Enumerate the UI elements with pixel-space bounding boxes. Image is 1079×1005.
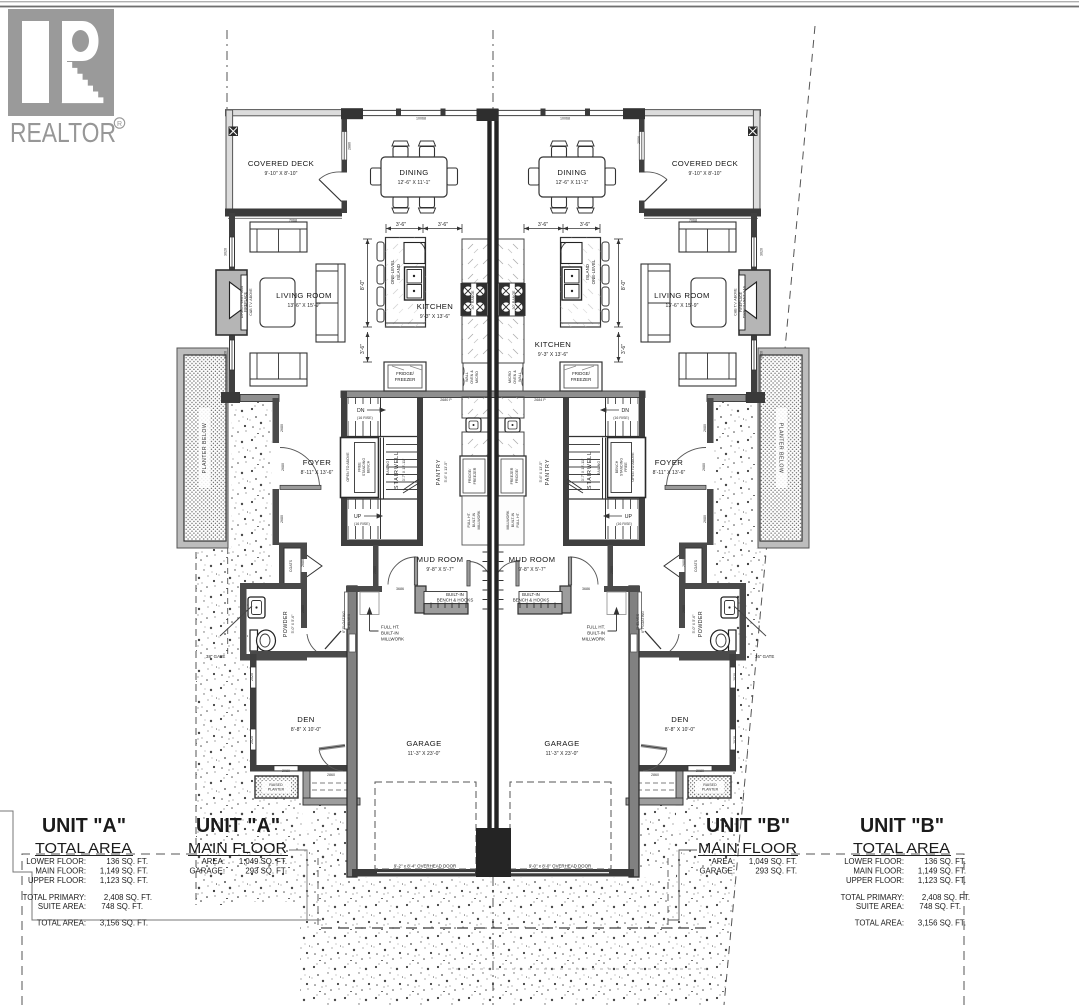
svg-text:MUD ROOM: MUD ROOM: [417, 555, 464, 564]
svg-text:TOTAL AREA:: TOTAL AREA:: [855, 919, 904, 928]
svg-text:MILLWORK: MILLWORK: [506, 510, 510, 530]
svg-text:9'-8" X 5'-7": 9'-8" X 5'-7": [426, 567, 453, 573]
svg-text:GARAGE:: GARAGE:: [699, 867, 735, 876]
svg-text:2680: 2680: [280, 424, 284, 432]
svg-text:REALTOR: REALTOR: [10, 117, 116, 148]
svg-text:WALL: WALL: [518, 372, 522, 382]
svg-text:C&B T.V. ABOVE: C&B T.V. ABOVE: [249, 288, 253, 316]
svg-text:ISLAND: ISLAND: [585, 264, 590, 280]
svg-text:3'-7" X 12'-11": 3'-7" X 12'-11": [402, 458, 406, 481]
svg-text:OPEN TO ABOVE: OPEN TO ABOVE: [346, 452, 350, 482]
svg-text:UPPER FLOOR:: UPPER FLOOR:: [846, 876, 904, 885]
svg-text:UNIT "B": UNIT "B": [706, 814, 790, 837]
svg-text:POWDER: POWDER: [698, 611, 704, 637]
svg-text:BUILT-IN: BUILT-IN: [522, 592, 540, 597]
svg-text:MICRO: MICRO: [508, 371, 512, 383]
svg-text:FRIDGE/: FRIDGE/: [515, 469, 519, 484]
svg-text:MAIN FLOOR: MAIN FLOOR: [698, 840, 797, 857]
svg-text:136 SQ. FT.: 136 SQ. FT.: [106, 857, 148, 866]
svg-text:38" GATE: 38" GATE: [206, 654, 225, 659]
svg-text:748 SQ. FT.: 748 SQ. FT.: [919, 902, 961, 911]
svg-text:8'-0": 8'-0": [360, 280, 366, 290]
svg-text:2886: 2886: [348, 142, 352, 150]
svg-text:DN: DN: [357, 408, 365, 414]
svg-text:2020: 2020: [733, 673, 737, 681]
svg-text:FRIDGE/: FRIDGE/: [396, 371, 415, 376]
svg-text:293 SQ. FT.: 293 SQ. FT.: [755, 867, 797, 876]
svg-text:13'-6" X 15'-9": 13'-6" X 15'-9": [665, 303, 698, 309]
svg-text:BUILT-IN: BUILT-IN: [446, 592, 464, 597]
svg-text:1,049 SQ. FT.: 1,049 SQ. FT.: [239, 857, 287, 866]
svg-text:RAILING: RAILING: [597, 461, 601, 476]
svg-text:FOYER: FOYER: [303, 458, 332, 467]
svg-text:12'-6" X 11'-1": 12'-6" X 11'-1": [398, 180, 431, 186]
svg-text:10068: 10068: [560, 117, 570, 121]
svg-text:DEN: DEN: [671, 715, 688, 724]
svg-text:OVEN &: OVEN &: [470, 370, 474, 384]
svg-text:GARAGE: GARAGE: [406, 739, 441, 748]
svg-text:WALL: WALL: [465, 372, 469, 382]
svg-text:POWDER: POWDER: [283, 611, 289, 637]
svg-text:(16 RISE): (16 RISE): [616, 522, 632, 526]
svg-text:RAISED: RAISED: [703, 783, 717, 787]
svg-text:GARAGE: GARAGE: [544, 739, 579, 748]
svg-text:COVERED DECK: COVERED DECK: [672, 159, 739, 168]
svg-text:2080: 2080: [696, 769, 704, 773]
svg-text:9'-10" X 8'-10": 9'-10" X 8'-10": [688, 171, 721, 177]
svg-text:DINING: DINING: [557, 168, 586, 177]
svg-text:LOWER FLOOR:: LOWER FLOOR:: [844, 857, 904, 866]
svg-text:2680: 2680: [702, 463, 706, 471]
svg-text:TOTAL PRIMARY:: TOTAL PRIMARY:: [23, 893, 86, 902]
svg-text:7068: 7068: [689, 219, 697, 223]
svg-text:5'-6" X 13'-5": 5'-6" X 13'-5": [444, 461, 448, 482]
svg-text:PLANTER BELOW: PLANTER BELOW: [778, 423, 784, 474]
svg-text:BENCH: BENCH: [367, 460, 371, 473]
svg-text:C&B T.V. ABOVE: C&B T.V. ABOVE: [734, 288, 738, 316]
svg-text:2680: 2680: [280, 515, 284, 523]
svg-text:36" GATE: 36" GATE: [755, 654, 774, 659]
svg-text:BUILT-IN: BUILT-IN: [587, 631, 605, 636]
svg-text:MUD ROOM: MUD ROOM: [509, 555, 556, 564]
svg-text:FREE: FREE: [624, 462, 628, 472]
svg-text:UNIT "A": UNIT "A": [42, 814, 126, 837]
svg-text:PANTRY: PANTRY: [545, 459, 551, 486]
svg-text:COATS: COATS: [289, 559, 293, 572]
svg-text:2880: 2880: [373, 566, 377, 574]
svg-text:BUILT-IN: BUILT-IN: [511, 512, 515, 527]
svg-text:5'-0" X 5'-6": 5'-0" X 5'-6": [692, 614, 696, 633]
svg-text:6" FLOATING: 6" FLOATING: [342, 611, 346, 633]
svg-text:9'-8" X 5'-7": 9'-8" X 5'-7": [518, 567, 545, 573]
svg-text:3020: 3020: [760, 248, 764, 256]
svg-text:3020: 3020: [224, 248, 228, 256]
svg-text:LIVING ROOM: LIVING ROOM: [654, 291, 710, 300]
svg-text:BENCH & HOOKS: BENCH & HOOKS: [513, 598, 550, 603]
svg-text:30" RANGE: 30" RANGE: [471, 290, 475, 310]
svg-text:OVEN &: OVEN &: [513, 370, 517, 384]
svg-text:9'-0" x 8'-0" OVERHEAD DOOR: 9'-0" x 8'-0" OVERHEAD DOOR: [529, 864, 591, 869]
svg-text:2,408 SQ. FT.: 2,408 SQ. FT.: [922, 893, 970, 902]
svg-text:FREEZER: FREEZER: [395, 377, 416, 382]
svg-text:3'-6": 3'-6": [580, 222, 590, 228]
svg-text:KITCHEN: KITCHEN: [417, 302, 454, 311]
svg-text:748 SQ. FT.: 748 SQ. FT.: [101, 902, 143, 911]
svg-text:MILLWORK: MILLWORK: [582, 637, 605, 642]
svg-text:(16 RISE): (16 RISE): [354, 522, 370, 526]
svg-text:3'-6": 3'-6": [621, 344, 627, 354]
svg-text:1,123 SQ. FT.: 1,123 SQ. FT.: [918, 876, 966, 885]
svg-text:UP: UP: [354, 514, 362, 520]
svg-text:MAIN FLOOR:: MAIN FLOOR:: [35, 867, 86, 876]
svg-text:UNIT "B": UNIT "B": [860, 814, 944, 837]
svg-text:STAIRWELL: STAIRWELL: [394, 451, 400, 489]
svg-text:3686: 3686: [396, 587, 404, 591]
svg-text:FIREPLACE: FIREPLACE: [739, 291, 743, 312]
svg-text:(16 RISE): (16 RISE): [357, 416, 373, 420]
svg-text:MILLWORK: MILLWORK: [381, 637, 404, 642]
svg-text:3,156 SQ. FT.: 3,156 SQ. FT.: [918, 919, 966, 928]
svg-text:(16 RISE): (16 RISE): [613, 416, 629, 420]
svg-text:LIVING ROOM: LIVING ROOM: [276, 291, 332, 300]
svg-text:2680: 2680: [281, 463, 285, 471]
svg-text:3020: 3020: [760, 351, 764, 359]
svg-text:UPPER FLOOR:: UPPER FLOOR:: [28, 876, 86, 885]
svg-text:RAISED: RAISED: [269, 783, 283, 787]
svg-text:2680: 2680: [301, 559, 305, 567]
svg-text:COATS: COATS: [694, 559, 698, 572]
svg-text:136 SQ. FT.: 136 SQ. FT.: [924, 857, 966, 866]
svg-text:7068: 7068: [289, 219, 297, 223]
svg-text:2080: 2080: [282, 769, 290, 773]
svg-text:ONE-LEVEL: ONE-LEVEL: [591, 259, 596, 284]
svg-text:SUITE AREA:: SUITE AREA:: [856, 902, 904, 911]
svg-text:UNIT "A": UNIT "A": [196, 814, 280, 837]
svg-text:9'-3" X 13'-6": 9'-3" X 13'-6": [420, 314, 450, 320]
svg-text:11'-3" X 23'-0": 11'-3" X 23'-0": [408, 751, 441, 757]
svg-text:30" RANGE: 30" RANGE: [512, 290, 516, 310]
svg-text:UP: UP: [625, 514, 633, 520]
svg-text:5'-6" X 13'-5": 5'-6" X 13'-5": [539, 461, 543, 482]
svg-text:12'-6" X 11'-1": 12'-6" X 11'-1": [556, 180, 589, 186]
svg-text:SHELVES: SHELVES: [347, 613, 351, 630]
svg-text:PLANTER BELOW: PLANTER BELOW: [202, 423, 208, 474]
svg-text:9'-2" x 8'-4" OVERHEAD DOOR: 9'-2" x 8'-4" OVERHEAD DOOR: [394, 864, 456, 869]
svg-text:LOWER FLOOR:: LOWER FLOOR:: [26, 857, 86, 866]
svg-text:MAIN FLOOR: MAIN FLOOR: [188, 840, 287, 857]
svg-text:8'-0": 8'-0": [621, 280, 627, 290]
svg-text:1,149 SQ. FT.: 1,149 SQ. FT.: [918, 867, 966, 876]
svg-text:2680: 2680: [301, 605, 305, 613]
svg-text:2860: 2860: [651, 773, 659, 777]
svg-text:3'-6": 3'-6": [538, 222, 548, 228]
svg-text:2880: 2880: [610, 566, 614, 574]
svg-text:2020: 2020: [250, 736, 254, 744]
svg-text:BENCH & HOOKS: BENCH & HOOKS: [437, 598, 474, 603]
svg-text:3'-6": 3'-6": [438, 222, 448, 228]
svg-text:FREE: FREE: [358, 462, 362, 472]
svg-text:TOTAL PRIMARY:: TOTAL PRIMARY:: [841, 893, 904, 902]
svg-text:PANTRY: PANTRY: [436, 459, 442, 486]
svg-text:STANDING: STANDING: [620, 458, 624, 477]
svg-text:DEN: DEN: [297, 715, 314, 724]
svg-text:8'-11" X 13'-6": 8'-11" X 13'-6": [301, 470, 334, 476]
svg-text:9'-3" X 13'-6": 9'-3" X 13'-6": [538, 352, 568, 358]
svg-text:FRIDGE/: FRIDGE/: [572, 371, 591, 376]
svg-text:2680: 2680: [703, 424, 707, 432]
svg-text:293 SQ. FT.: 293 SQ. FT.: [245, 867, 287, 876]
svg-text:2020: 2020: [733, 736, 737, 744]
svg-text:8'-8" X 10'-0": 8'-8" X 10'-0": [665, 727, 695, 733]
svg-text:STAIRWELL: STAIRWELL: [587, 451, 593, 489]
svg-text:TOTAL AREA:: TOTAL AREA:: [37, 919, 86, 928]
svg-text:2886: 2886: [637, 136, 641, 144]
svg-text:RAILING: RAILING: [386, 461, 390, 476]
svg-text:BENCH: BENCH: [615, 460, 619, 473]
svg-text:FRIDGE/: FRIDGE/: [468, 469, 472, 484]
svg-text:3'-6": 3'-6": [360, 344, 366, 354]
svg-text:GARAGE:: GARAGE:: [189, 867, 225, 876]
svg-text:1,149 SQ. FT.: 1,149 SQ. FT.: [100, 867, 148, 876]
svg-text:AREA:: AREA:: [712, 857, 735, 866]
svg-text:PLANTER: PLANTER: [702, 788, 719, 792]
svg-text:FREEZER: FREEZER: [510, 467, 514, 484]
svg-text:ISLAND: ISLAND: [396, 264, 401, 280]
svg-text:STANDING: STANDING: [362, 458, 366, 477]
svg-text:FIREPLACE: FIREPLACE: [244, 291, 248, 312]
svg-text:MAIN FLOOR:: MAIN FLOOR:: [853, 867, 904, 876]
svg-text:AREA:: AREA:: [202, 857, 225, 866]
svg-text:3'-7" X 12'-11": 3'-7" X 12'-11": [581, 458, 585, 481]
svg-text:MILLWORK: MILLWORK: [477, 510, 481, 530]
svg-text:2680: 2680: [682, 605, 686, 613]
svg-text:2680 P: 2680 P: [440, 398, 452, 402]
svg-text:BUILT-IN: BUILT-IN: [472, 512, 476, 527]
svg-text:2680: 2680: [682, 559, 686, 567]
svg-text:FREEZER: FREEZER: [473, 467, 477, 484]
svg-text:3'-6": 3'-6": [396, 222, 406, 228]
svg-text:FREEZER: FREEZER: [571, 377, 592, 382]
svg-text:5'-0" X 5'-6": 5'-0" X 5'-6": [291, 614, 295, 633]
svg-text:PLANTER: PLANTER: [268, 788, 285, 792]
svg-text:COVERED DECK: COVERED DECK: [248, 159, 315, 168]
svg-text:OPEN TO ABOVE: OPEN TO ABOVE: [631, 452, 635, 482]
svg-text:DINING: DINING: [399, 168, 428, 177]
svg-text:FULL HT.: FULL HT.: [381, 625, 399, 630]
svg-text:3020: 3020: [224, 351, 228, 359]
svg-text:11'-3" X 23'-0": 11'-3" X 23'-0": [546, 751, 579, 757]
svg-text:6" FLOATING: 6" FLOATING: [641, 611, 645, 633]
svg-text:10068: 10068: [416, 117, 426, 121]
svg-text:8'-8" X 10'-0": 8'-8" X 10'-0": [291, 727, 321, 733]
svg-text:ONE-LEVEL: ONE-LEVEL: [390, 259, 395, 284]
svg-text:2020: 2020: [250, 673, 254, 681]
svg-text:1,049 SQ. FT.: 1,049 SQ. FT.: [749, 857, 797, 866]
svg-text:MICRO: MICRO: [475, 371, 479, 383]
svg-text:DIRECT VENT GAS: DIRECT VENT GAS: [743, 285, 747, 318]
svg-text:SUITE AREA:: SUITE AREA:: [38, 902, 86, 911]
svg-text:2,408 SQ. FT.: 2,408 SQ. FT.: [104, 893, 152, 902]
svg-text:R: R: [117, 121, 122, 128]
svg-text:13'-6" X 15'-9": 13'-6" X 15'-9": [287, 303, 320, 309]
svg-text:DN: DN: [622, 408, 630, 414]
svg-text:3686: 3686: [582, 587, 590, 591]
svg-text:2860: 2860: [327, 773, 335, 777]
svg-text:SHELVES: SHELVES: [636, 613, 640, 630]
svg-text:BUILT-IN: BUILT-IN: [381, 631, 399, 636]
svg-text:3,156 SQ. FT.: 3,156 SQ. FT.: [100, 919, 148, 928]
svg-text:FULL HT.: FULL HT.: [587, 625, 605, 630]
svg-text:9'-10" X 8'-10": 9'-10" X 8'-10": [264, 171, 297, 177]
svg-text:FULL HT.: FULL HT.: [516, 512, 520, 527]
svg-text:FULL HT.: FULL HT.: [467, 512, 471, 527]
svg-text:KITCHEN: KITCHEN: [535, 340, 572, 349]
svg-text:8'-11" X 13'-6": 8'-11" X 13'-6": [653, 470, 686, 476]
svg-text:FOYER: FOYER: [655, 458, 684, 467]
svg-text:1,123 SQ. FT.: 1,123 SQ. FT.: [100, 876, 148, 885]
svg-text:2680: 2680: [703, 515, 707, 523]
svg-text:2684 P: 2684 P: [534, 398, 546, 402]
